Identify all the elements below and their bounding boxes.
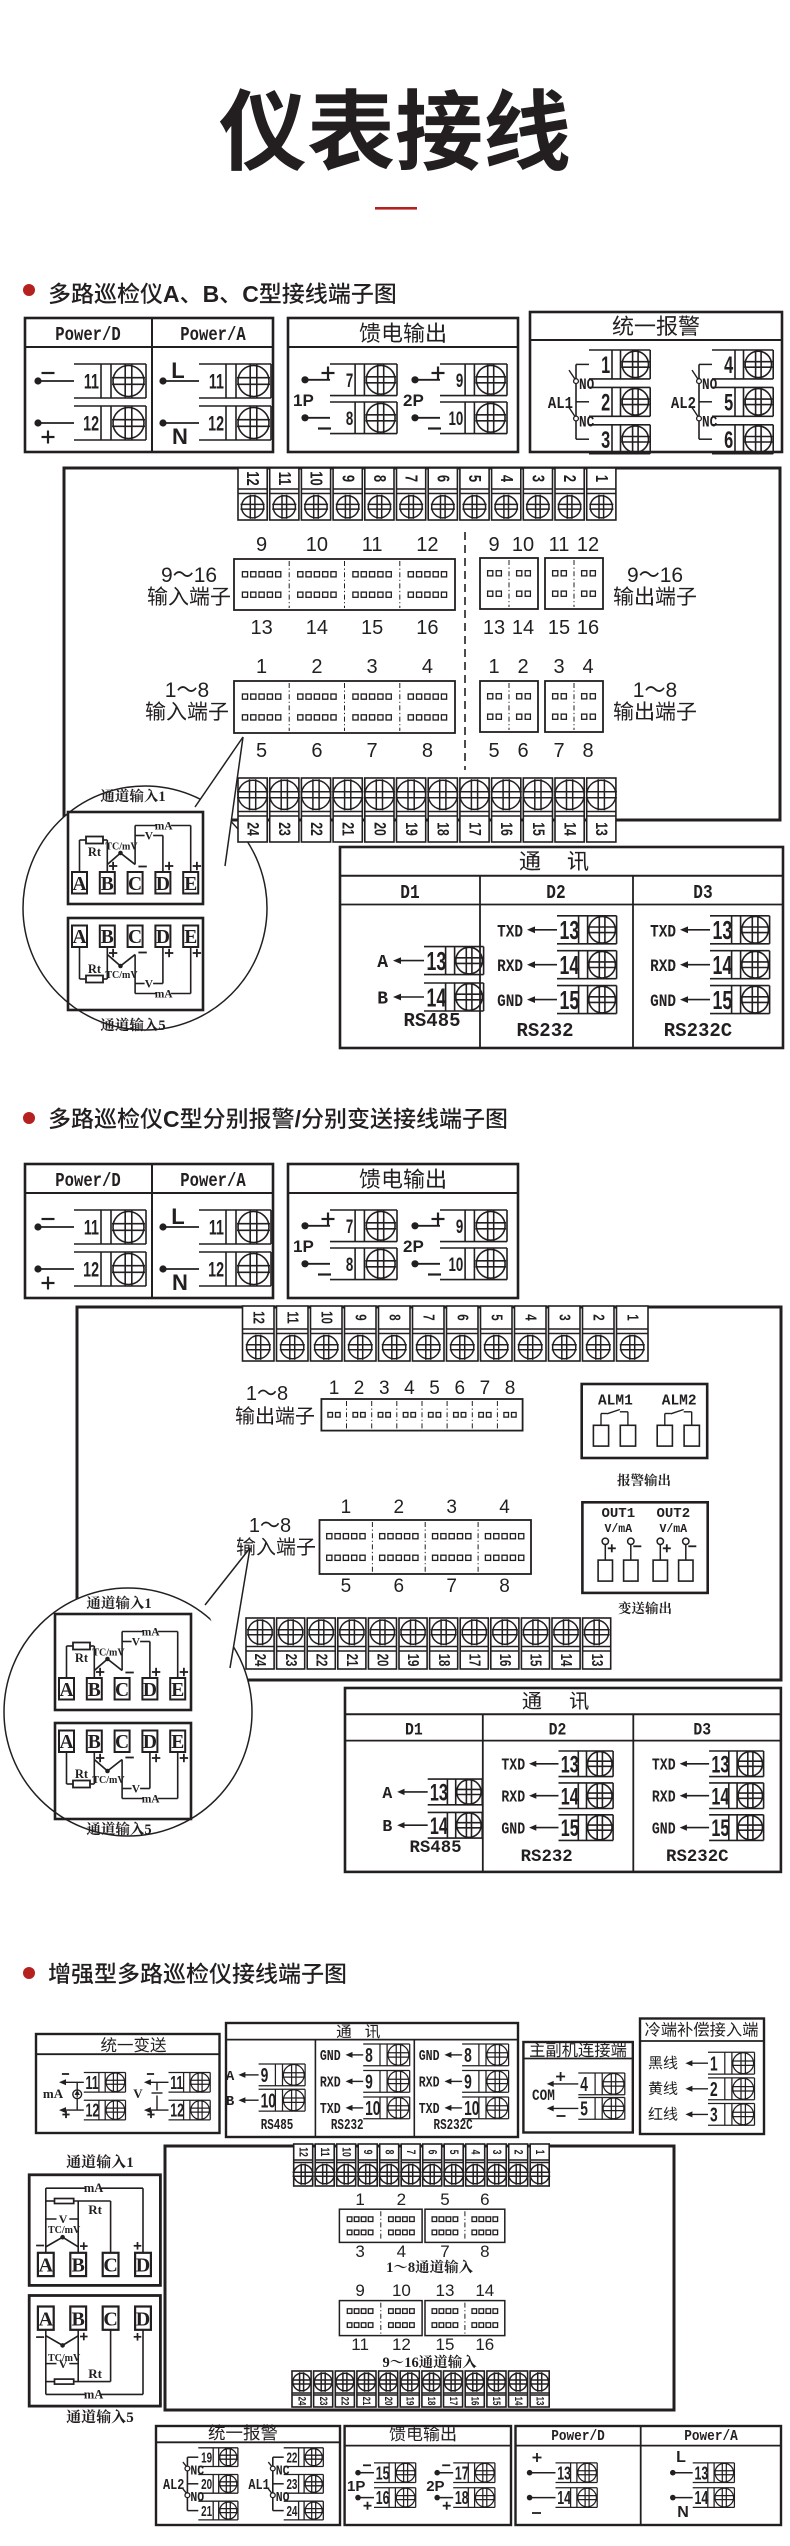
svg-text:B: B <box>226 2094 235 2110</box>
svg-text:15: 15 <box>376 2464 390 2484</box>
svg-text:Power/A: Power/A <box>684 2428 738 2445</box>
svg-text:16: 16 <box>475 2335 494 2354</box>
svg-text:1: 1 <box>256 656 267 678</box>
svg-text:13: 13 <box>588 1654 606 1667</box>
svg-text:5: 5 <box>256 740 267 762</box>
svg-text:N: N <box>172 424 188 449</box>
svg-text:12: 12 <box>208 412 224 435</box>
svg-text:5: 5 <box>465 475 485 482</box>
svg-text:A: A <box>163 281 180 307</box>
svg-text:D1: D1 <box>405 1721 423 1740</box>
svg-text:1: 1 <box>386 2260 393 2276</box>
svg-text:D: D <box>136 2255 150 2277</box>
svg-text:21: 21 <box>338 822 356 836</box>
svg-text:AL1: AL1 <box>248 2477 269 2493</box>
svg-text:L: L <box>171 358 184 383</box>
svg-text:NO: NO <box>190 2489 204 2505</box>
svg-text:8: 8 <box>505 1378 516 1399</box>
svg-text:16: 16 <box>194 564 217 587</box>
svg-text:15: 15 <box>490 2397 503 2406</box>
svg-text:14: 14 <box>560 951 580 980</box>
svg-text:12: 12 <box>577 534 599 556</box>
svg-text:9: 9 <box>161 564 173 587</box>
svg-text:TC/mV: TC/mV <box>105 842 138 853</box>
svg-text:11: 11 <box>209 1216 224 1239</box>
svg-text:20: 20 <box>374 1654 392 1667</box>
svg-text:TXD: TXD <box>650 921 676 942</box>
svg-text:6: 6 <box>517 740 528 762</box>
svg-text:9: 9 <box>488 534 499 556</box>
svg-text:2: 2 <box>354 1378 365 1399</box>
svg-text:D2: D2 <box>549 1721 567 1740</box>
svg-text:14: 14 <box>561 1784 580 1810</box>
svg-text:14: 14 <box>558 1654 576 1667</box>
svg-text:9: 9 <box>261 2063 269 2086</box>
svg-text:1: 1 <box>633 679 645 702</box>
svg-text:B: B <box>88 1732 101 1753</box>
svg-text:2: 2 <box>710 2077 718 2100</box>
svg-text:9: 9 <box>464 2070 472 2093</box>
svg-text:1P: 1P <box>347 2478 365 2495</box>
svg-text:7: 7 <box>420 1314 438 1321</box>
svg-text:9: 9 <box>355 2281 364 2300</box>
svg-text:10: 10 <box>261 2089 276 2112</box>
svg-text:16: 16 <box>497 822 515 836</box>
svg-text:TC/mV: TC/mV <box>105 970 138 981</box>
svg-text:14: 14 <box>557 2489 571 2509</box>
svg-text:1: 1 <box>246 1383 257 1405</box>
svg-text:B: B <box>101 927 114 948</box>
svg-text:7: 7 <box>446 1576 457 1597</box>
svg-text:13: 13 <box>483 617 505 639</box>
svg-text:mA: mA <box>43 2086 64 2101</box>
svg-text:1: 1 <box>126 2155 134 2171</box>
svg-text:1: 1 <box>158 789 165 805</box>
svg-text:1: 1 <box>624 1314 642 1321</box>
svg-text:21: 21 <box>344 1654 362 1667</box>
svg-text:RS232: RS232 <box>521 1848 573 1867</box>
svg-text:Rt: Rt <box>88 2366 102 2381</box>
svg-text:6: 6 <box>311 740 322 762</box>
svg-text:2: 2 <box>601 389 610 416</box>
svg-text:6: 6 <box>425 2150 438 2155</box>
svg-text:RS485: RS485 <box>261 2117 294 2134</box>
svg-text:8: 8 <box>382 2150 395 2155</box>
svg-text:8: 8 <box>280 1515 291 1537</box>
svg-text:13: 13 <box>711 1752 729 1778</box>
svg-text:TXD: TXD <box>419 2101 440 2118</box>
svg-text:1: 1 <box>249 1515 260 1537</box>
svg-text:AL1: AL1 <box>548 394 573 414</box>
svg-text:NO: NO <box>276 2489 290 2505</box>
svg-text:10: 10 <box>306 534 328 556</box>
svg-text:10: 10 <box>512 534 534 556</box>
svg-text:22: 22 <box>313 1654 331 1667</box>
svg-text:8: 8 <box>408 2260 415 2276</box>
svg-text:mA: mA <box>155 821 174 833</box>
svg-text:15: 15 <box>713 986 733 1015</box>
svg-text:8: 8 <box>499 1576 510 1597</box>
svg-text:17: 17 <box>455 2464 469 2484</box>
svg-text:2P: 2P <box>403 391 424 410</box>
svg-text:7: 7 <box>401 475 421 482</box>
svg-text:2: 2 <box>590 1314 608 1321</box>
svg-text:1: 1 <box>355 2190 364 2209</box>
svg-text:16: 16 <box>497 1654 515 1667</box>
svg-text:GND: GND <box>652 1821 676 1839</box>
svg-text:D: D <box>143 1680 157 1701</box>
svg-text:4: 4 <box>468 2150 481 2155</box>
svg-text:mA: mA <box>84 2387 103 2401</box>
svg-text:6: 6 <box>724 427 733 454</box>
svg-text:5: 5 <box>488 740 499 762</box>
svg-text:GND: GND <box>497 991 523 1012</box>
svg-text:GND: GND <box>419 2048 440 2065</box>
svg-text:A: A <box>59 1680 73 1701</box>
svg-text:22: 22 <box>338 2397 351 2406</box>
svg-text:D: D <box>156 874 170 895</box>
svg-text:E: E <box>184 927 197 948</box>
svg-text:Rt: Rt <box>75 1767 89 1781</box>
svg-text:A: A <box>382 1784 392 1803</box>
svg-text:mA: mA <box>155 989 174 1001</box>
svg-text:NO: NO <box>702 377 717 394</box>
svg-text:9: 9 <box>256 534 267 556</box>
svg-text:RS485: RS485 <box>403 1010 460 1032</box>
svg-text:17: 17 <box>466 1654 484 1667</box>
svg-text:9: 9 <box>338 475 358 482</box>
svg-text:6: 6 <box>455 1378 466 1399</box>
svg-text:24: 24 <box>252 1654 270 1667</box>
svg-text:TC/mV: TC/mV <box>48 2353 81 2364</box>
svg-text:14: 14 <box>695 2489 709 2509</box>
svg-text:23: 23 <box>275 822 293 836</box>
svg-text:8: 8 <box>464 2043 472 2066</box>
svg-text:10: 10 <box>365 2096 380 2119</box>
svg-text:11: 11 <box>86 2074 99 2094</box>
svg-text:10: 10 <box>339 2147 352 2157</box>
svg-text:RS232C: RS232C <box>434 2117 473 2134</box>
svg-text:8: 8 <box>277 1383 288 1405</box>
svg-text:V: V <box>132 1784 141 1796</box>
svg-text:12: 12 <box>86 2101 100 2121</box>
svg-text:11: 11 <box>549 534 570 556</box>
svg-text:5: 5 <box>341 1576 352 1597</box>
svg-text:10: 10 <box>448 407 463 429</box>
svg-text:3: 3 <box>710 2103 718 2126</box>
svg-text:13: 13 <box>713 916 733 945</box>
svg-text:/: / <box>295 1106 302 1132</box>
svg-text:10: 10 <box>392 2281 411 2300</box>
svg-text:TC/mV: TC/mV <box>92 1648 125 1659</box>
svg-text:RXD: RXD <box>419 2074 440 2091</box>
svg-text:2P: 2P <box>426 2478 444 2495</box>
svg-text:15: 15 <box>548 617 570 639</box>
svg-text:11: 11 <box>84 370 99 393</box>
svg-text:5: 5 <box>580 2097 588 2120</box>
svg-text:5: 5 <box>429 1378 440 1399</box>
svg-text:8: 8 <box>365 2043 373 2066</box>
svg-text:3: 3 <box>601 427 610 454</box>
svg-text:RXD: RXD <box>501 1789 525 1807</box>
svg-text:18: 18 <box>425 2397 438 2406</box>
svg-text:D2: D2 <box>546 883 565 905</box>
svg-text:TXD: TXD <box>497 921 523 942</box>
svg-text:3: 3 <box>379 1378 390 1399</box>
svg-text:2: 2 <box>394 1497 405 1518</box>
svg-text:16: 16 <box>660 564 683 587</box>
svg-text:7: 7 <box>404 2150 417 2155</box>
svg-text:V/mA: V/mA <box>659 1523 687 1536</box>
svg-text:RS232C: RS232C <box>666 1848 729 1867</box>
svg-text:Power/D: Power/D <box>55 326 120 347</box>
svg-text:7: 7 <box>440 2242 449 2261</box>
svg-text:A: A <box>72 874 86 895</box>
svg-text:2: 2 <box>397 2190 406 2209</box>
svg-text:N: N <box>677 2504 689 2521</box>
svg-text:B: B <box>377 990 388 1010</box>
svg-text:5: 5 <box>447 2150 460 2155</box>
svg-text:ALM2: ALM2 <box>662 1393 697 1409</box>
svg-text:3: 3 <box>355 2242 364 2261</box>
svg-text:C: C <box>128 874 142 895</box>
svg-text:5: 5 <box>488 1314 506 1321</box>
svg-text:4: 4 <box>422 656 433 678</box>
svg-text:16: 16 <box>416 617 438 639</box>
svg-text:7: 7 <box>480 1378 491 1399</box>
svg-text:V/mA: V/mA <box>604 1523 632 1536</box>
svg-text:1P: 1P <box>293 1237 314 1256</box>
svg-text:Power/D: Power/D <box>55 1172 120 1193</box>
svg-text:3: 3 <box>446 1497 457 1518</box>
svg-text:13: 13 <box>592 822 610 836</box>
svg-text:12: 12 <box>208 1258 224 1281</box>
svg-text:3: 3 <box>556 1314 574 1321</box>
svg-text:12: 12 <box>296 2147 309 2157</box>
svg-text:21: 21 <box>201 2503 212 2519</box>
svg-text:4: 4 <box>724 352 734 379</box>
svg-text:15: 15 <box>560 986 580 1015</box>
svg-text:15: 15 <box>527 1654 545 1667</box>
svg-text:14: 14 <box>512 617 534 639</box>
svg-text:3: 3 <box>367 656 378 678</box>
svg-text:4: 4 <box>522 1314 540 1321</box>
svg-text:GND: GND <box>320 2048 341 2065</box>
svg-text:16: 16 <box>376 2489 390 2509</box>
svg-text:5: 5 <box>724 389 733 416</box>
svg-text:E: E <box>171 1680 184 1701</box>
svg-text:2: 2 <box>560 475 580 482</box>
svg-text:1: 1 <box>488 656 499 678</box>
svg-text:V: V <box>132 1637 141 1649</box>
svg-text:NO: NO <box>579 377 594 394</box>
svg-text:RXD: RXD <box>320 2074 341 2091</box>
svg-text:5: 5 <box>440 2190 449 2209</box>
svg-text:8: 8 <box>480 2242 489 2261</box>
svg-text:B: B <box>203 281 220 307</box>
svg-text:AL2: AL2 <box>163 2477 184 2493</box>
svg-text:4: 4 <box>582 656 593 678</box>
svg-text:RS232: RS232 <box>331 2117 364 2134</box>
svg-text:NC: NC <box>276 2462 290 2478</box>
svg-text:4: 4 <box>397 2242 406 2261</box>
svg-text:17: 17 <box>465 822 483 836</box>
svg-text:NC: NC <box>702 414 718 431</box>
svg-text:10: 10 <box>448 1253 463 1275</box>
svg-text:V: V <box>145 831 154 843</box>
svg-text:Rt: Rt <box>88 845 102 859</box>
svg-text:6: 6 <box>394 1576 405 1597</box>
svg-text:TXD: TXD <box>501 1758 525 1776</box>
svg-text:23: 23 <box>316 2397 329 2406</box>
svg-text:4: 4 <box>499 1497 510 1518</box>
svg-text:13: 13 <box>250 617 272 639</box>
svg-text:Rt: Rt <box>88 2202 102 2217</box>
svg-text:1: 1 <box>144 1596 151 1612</box>
svg-text:V: V <box>145 979 154 991</box>
svg-text:11: 11 <box>284 1311 302 1323</box>
svg-text:RS232: RS232 <box>516 1020 573 1042</box>
svg-text:24: 24 <box>295 2397 308 2406</box>
svg-text:ALM1: ALM1 <box>598 1393 633 1409</box>
svg-text:9: 9 <box>383 2355 390 2371</box>
svg-text:8: 8 <box>582 740 593 762</box>
svg-text:8: 8 <box>369 475 389 482</box>
svg-text:4: 4 <box>404 1378 415 1399</box>
svg-text:11: 11 <box>170 2074 183 2094</box>
svg-text:14: 14 <box>713 951 733 980</box>
svg-text:E: E <box>184 874 197 895</box>
svg-text:5: 5 <box>158 1018 165 1034</box>
svg-text:7: 7 <box>367 740 378 762</box>
svg-text:B: B <box>88 1680 101 1701</box>
svg-text:6: 6 <box>433 475 453 482</box>
svg-text:C: C <box>128 927 142 948</box>
svg-text:18: 18 <box>433 822 451 836</box>
svg-text:19: 19 <box>403 2397 416 2406</box>
svg-text:15: 15 <box>436 2335 455 2354</box>
svg-text:NC: NC <box>190 2462 204 2478</box>
svg-text:Power/D: Power/D <box>551 2428 605 2445</box>
svg-text:6: 6 <box>454 1314 472 1321</box>
svg-text:Rt: Rt <box>75 1651 89 1665</box>
svg-text:E: E <box>171 1732 184 1753</box>
svg-text:9: 9 <box>365 2070 373 2093</box>
svg-text:6: 6 <box>480 2190 489 2209</box>
svg-text:13: 13 <box>430 1781 448 1807</box>
svg-text:mA: mA <box>142 1794 161 1806</box>
svg-text:11: 11 <box>84 1216 99 1239</box>
svg-text:13: 13 <box>695 2464 709 2484</box>
svg-text:4: 4 <box>580 2072 588 2095</box>
svg-text:7: 7 <box>346 369 353 391</box>
svg-text:22: 22 <box>306 822 324 836</box>
svg-text:20: 20 <box>370 822 388 836</box>
svg-text:Rt: Rt <box>88 962 102 976</box>
svg-text:12: 12 <box>83 1258 99 1281</box>
svg-text:11: 11 <box>209 370 224 393</box>
svg-text:3: 3 <box>528 475 548 482</box>
svg-text:TXD: TXD <box>320 2101 341 2118</box>
svg-text:L: L <box>171 1204 184 1229</box>
svg-text:15: 15 <box>361 617 383 639</box>
svg-text:RS485: RS485 <box>409 1839 461 1858</box>
svg-text:8: 8 <box>346 1253 353 1275</box>
svg-text:GND: GND <box>650 991 676 1012</box>
svg-text:14: 14 <box>511 2397 524 2406</box>
svg-text:19: 19 <box>405 1654 423 1667</box>
svg-text:3: 3 <box>553 656 564 678</box>
svg-text:A: A <box>39 2308 54 2330</box>
svg-text:NC: NC <box>579 414 595 431</box>
svg-text:C: C <box>115 1732 129 1753</box>
svg-text:1P: 1P <box>293 391 314 410</box>
svg-text:D: D <box>143 1732 157 1753</box>
svg-text:21: 21 <box>360 2397 373 2406</box>
svg-text:mA: mA <box>84 2181 103 2195</box>
svg-text:4: 4 <box>496 475 516 482</box>
svg-text:16: 16 <box>468 2397 481 2406</box>
svg-text:11: 11 <box>351 2335 369 2354</box>
svg-text:2: 2 <box>517 656 528 678</box>
svg-text:9: 9 <box>352 1314 370 1321</box>
svg-text:18: 18 <box>455 2489 469 2509</box>
svg-text:9: 9 <box>456 1215 463 1237</box>
svg-text:5: 5 <box>144 1822 151 1838</box>
svg-text:9: 9 <box>456 369 463 391</box>
svg-text:RXD: RXD <box>652 1789 676 1807</box>
svg-text:8: 8 <box>386 1314 404 1321</box>
svg-text:Power/A: Power/A <box>180 326 246 347</box>
svg-text:10: 10 <box>306 471 326 486</box>
svg-text:A: A <box>377 953 388 973</box>
svg-text:24: 24 <box>286 2503 297 2519</box>
svg-text:9: 9 <box>627 564 639 587</box>
svg-text:B: B <box>72 2255 85 2277</box>
svg-text:12: 12 <box>416 534 438 556</box>
svg-text:20: 20 <box>381 2397 394 2406</box>
svg-text:13: 13 <box>427 947 447 976</box>
svg-text:mA: mA <box>142 1627 161 1639</box>
svg-text:12: 12 <box>392 2335 411 2354</box>
svg-text:8: 8 <box>422 740 433 762</box>
svg-text:18: 18 <box>435 1654 453 1667</box>
svg-text:1: 1 <box>165 679 177 702</box>
svg-text:GND: GND <box>501 1821 525 1839</box>
svg-text:15: 15 <box>711 1816 729 1842</box>
svg-text:3: 3 <box>490 2150 503 2155</box>
svg-text:RXD: RXD <box>650 956 676 977</box>
svg-text:12: 12 <box>83 412 99 435</box>
svg-text:8: 8 <box>666 679 678 702</box>
svg-text:14: 14 <box>560 822 578 836</box>
svg-text:D1: D1 <box>400 883 419 905</box>
svg-text:TC/mV: TC/mV <box>92 1775 125 1786</box>
svg-text:RXD: RXD <box>497 956 523 977</box>
svg-text:A: A <box>59 1732 73 1753</box>
svg-text:RS232C: RS232C <box>664 1020 732 1042</box>
svg-text:9: 9 <box>361 2150 374 2155</box>
svg-text:COM: COM <box>532 2088 555 2105</box>
svg-text:13: 13 <box>561 1752 579 1778</box>
svg-text:23: 23 <box>282 1654 300 1667</box>
svg-text:13: 13 <box>557 2464 571 2484</box>
svg-text:7: 7 <box>346 1215 353 1237</box>
svg-text:24: 24 <box>243 822 261 836</box>
svg-text:12: 12 <box>243 471 263 486</box>
svg-text:D: D <box>136 2308 150 2330</box>
svg-text:D3: D3 <box>693 883 712 905</box>
